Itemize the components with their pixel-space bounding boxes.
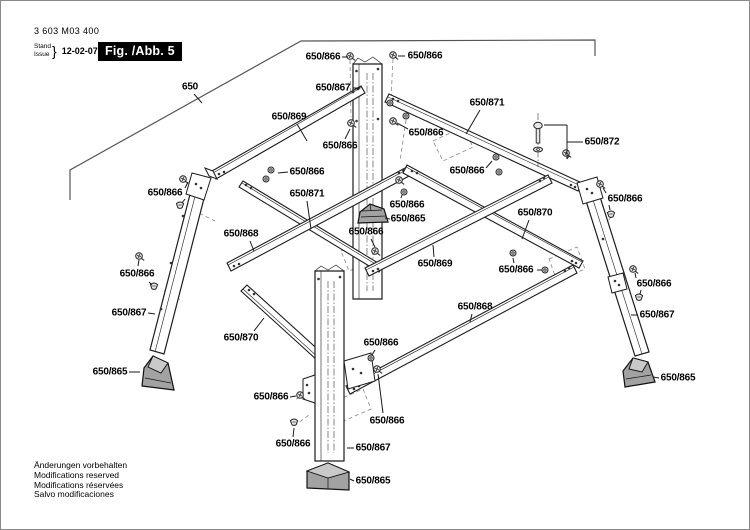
part-callout-label: 650/871 xyxy=(290,189,325,200)
exploded-view-drawing: 650650/866650/866650/867650/869650/87165… xyxy=(1,1,750,530)
part-callout-label: 650/866 xyxy=(323,141,358,152)
part-callout-label: 650/866 xyxy=(290,167,325,178)
part-callout-label: 650/866 xyxy=(409,128,444,139)
callout-leader-line xyxy=(345,129,350,139)
brace-upper-left-650-869 xyxy=(205,86,365,179)
callout-leader-line xyxy=(513,258,514,263)
part-callout-label: 650/867 xyxy=(112,308,147,319)
callout-leader-line xyxy=(397,123,408,129)
part-callout-label: 650/866 xyxy=(499,265,534,276)
part-callout-label: 650/866 xyxy=(276,439,311,450)
part-callout-label: 650/867 xyxy=(640,310,675,321)
brace-mid-front-650-869 xyxy=(365,175,552,276)
part-callout-label: 650/865 xyxy=(93,367,128,378)
part-callout-label: 650/872 xyxy=(585,137,620,148)
foot-right xyxy=(623,358,655,387)
callout-leader-line xyxy=(603,188,606,193)
part-callout-label: 650/866 xyxy=(120,269,155,280)
part-callout-label: 650/866 xyxy=(306,52,341,63)
part-callout-label: 650/868 xyxy=(458,302,493,313)
part-callout-label: 650/868 xyxy=(224,229,259,240)
callout-leader-line xyxy=(433,245,434,257)
callout-leader-line xyxy=(466,110,480,134)
parts-diagram-page: 3 603 M03 400 Stand Issue } 12-02-07 Fig… xyxy=(0,0,750,530)
callout-leader-line xyxy=(350,479,354,481)
part-callout-label: 650/867 xyxy=(356,443,391,454)
bolt-icon-650-872 xyxy=(534,113,543,167)
part-callout-label: 650/866 xyxy=(637,279,672,290)
table-top-outline xyxy=(70,40,595,200)
callout-leader-line xyxy=(401,195,402,198)
part-callout-label: 650/865 xyxy=(391,214,426,225)
notice-es: Salvo modificaciones xyxy=(34,490,127,500)
callout-leader-line xyxy=(372,350,375,355)
leg-left xyxy=(150,173,211,354)
callout-leader-line xyxy=(194,94,202,103)
part-callout-label: 650/866 xyxy=(450,166,485,177)
callout-leader-line xyxy=(640,290,641,294)
callout-leader-line xyxy=(609,205,610,210)
callout-leader-line xyxy=(278,172,288,173)
part-callout-label: 650/870 xyxy=(224,333,259,344)
callout-leader-line xyxy=(293,428,294,437)
callout-leader-line xyxy=(486,161,492,168)
callout-leader-line xyxy=(635,273,636,278)
callout-leader-line xyxy=(254,318,264,331)
part-callout-label: 650/865 xyxy=(356,476,391,487)
part-callout-label: 650/869 xyxy=(272,112,307,123)
callout-leader-line xyxy=(182,199,185,203)
part-callout-label: 650 xyxy=(182,82,199,93)
part-callout-label: 650/870 xyxy=(518,208,553,219)
part-callout-label: 650/865 xyxy=(661,373,696,384)
callout-leader-line xyxy=(290,396,296,397)
part-callout-label: 650/869 xyxy=(418,259,453,270)
callout-leader-line xyxy=(138,260,139,266)
legal-notices: Änderungen vorbehalten Modifications res… xyxy=(34,461,127,500)
part-callout-label: 650/866 xyxy=(608,194,643,205)
part-callout-label: 650/866 xyxy=(254,392,289,403)
part-callout-label: 650/871 xyxy=(470,98,505,109)
callout-leader-line xyxy=(378,374,383,413)
part-callout-label: 650/866 xyxy=(370,416,405,427)
part-callout-label: 650/867 xyxy=(316,83,351,94)
part-callout-label: 650/866 xyxy=(390,200,425,211)
part-callout-label: 650/866 xyxy=(148,188,183,199)
part-callout-label: 650/866 xyxy=(408,51,443,62)
part-callout-label: 650/866 xyxy=(349,227,384,238)
foot-left xyxy=(142,356,174,390)
callout-leader-line xyxy=(148,313,155,314)
part-callout-label: 650/866 xyxy=(364,338,399,349)
foot-front xyxy=(307,463,349,490)
